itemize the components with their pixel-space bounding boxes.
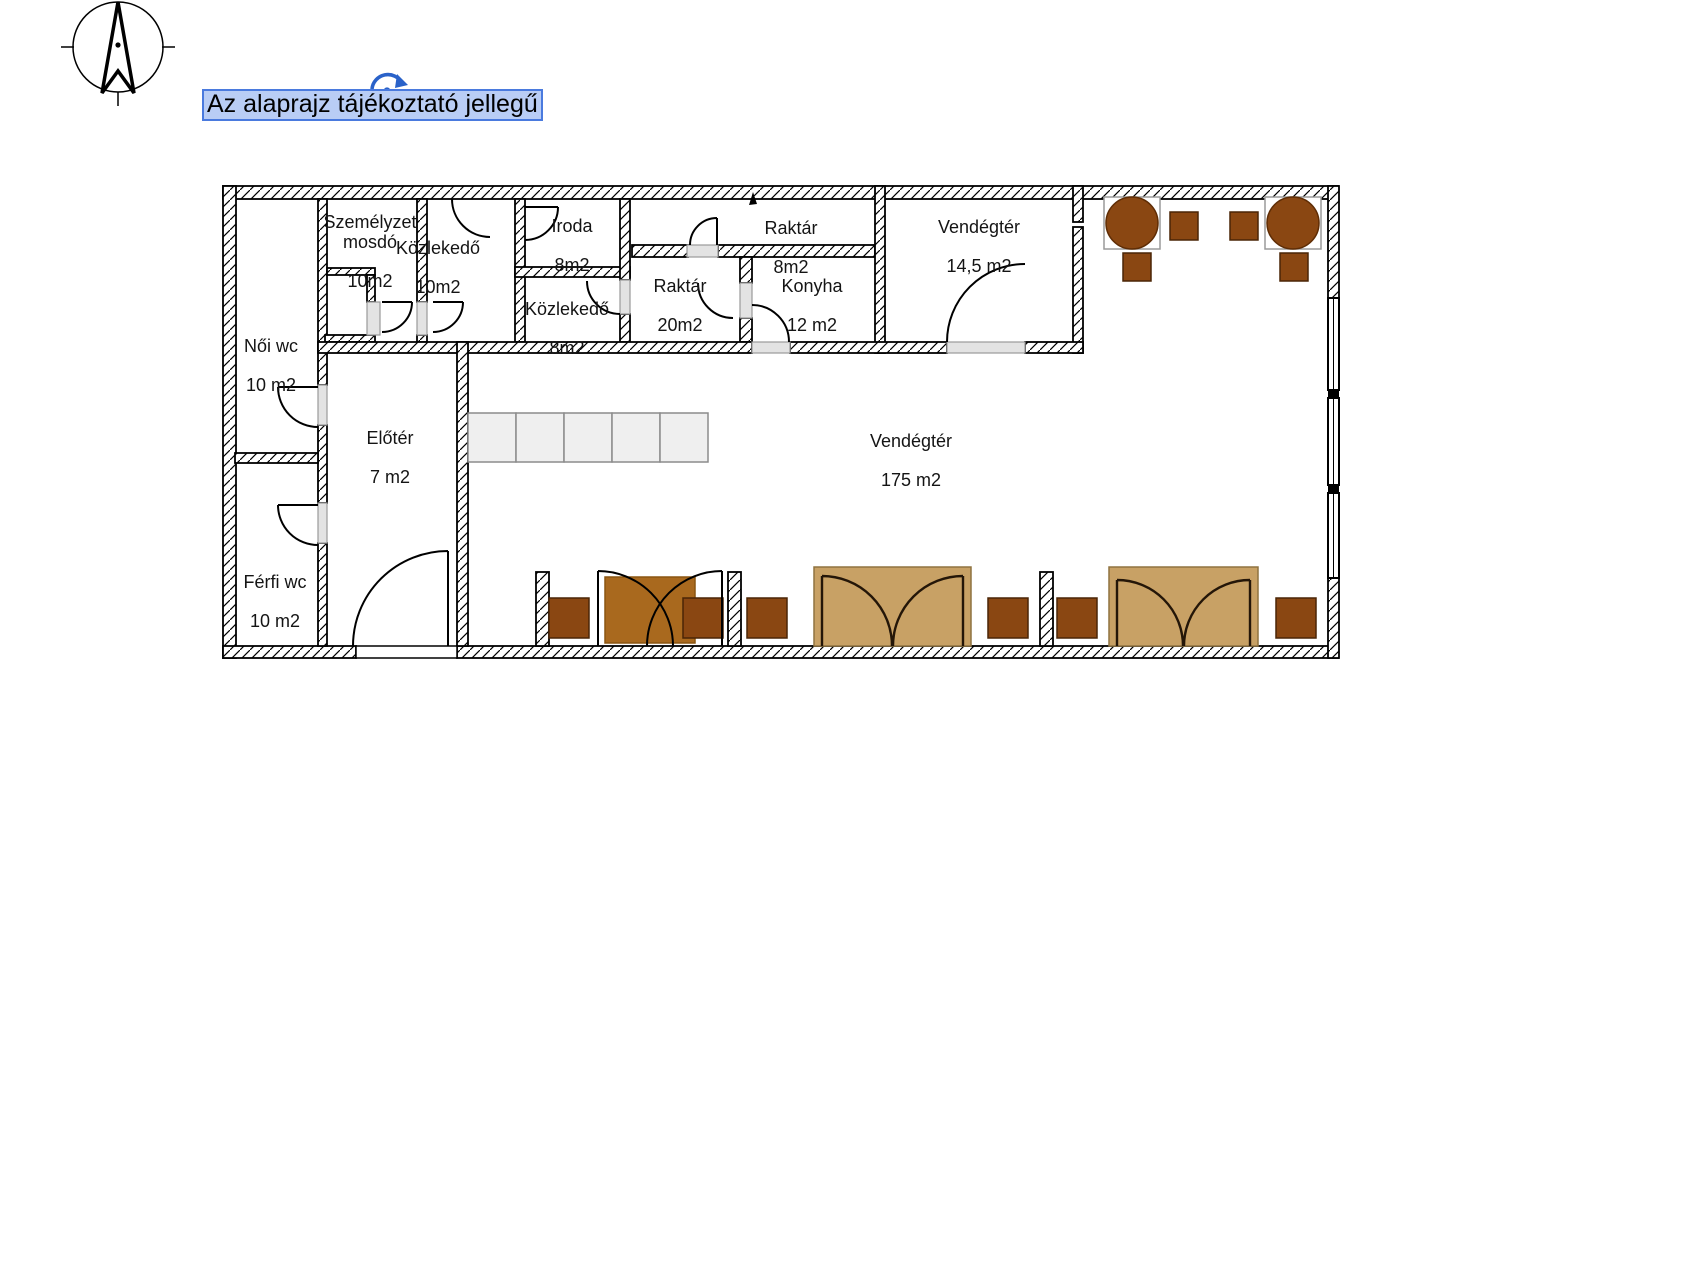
window-mullion xyxy=(1328,485,1339,493)
bar-counter-segment[interactable] xyxy=(660,413,708,462)
bar-counter-segment[interactable] xyxy=(516,413,564,462)
wall-segment xyxy=(417,335,427,342)
wall-segment xyxy=(1025,342,1083,353)
bar-counter[interactable] xyxy=(468,413,708,462)
room-name: Közlekedő xyxy=(525,300,609,319)
floor-plan-page: Az alaprajz tájékoztató jellegű xyxy=(0,0,1690,1284)
room-label-kozlekedo-10: Közlekedő 10m2 xyxy=(396,220,480,317)
round-table-group[interactable] xyxy=(1104,197,1198,281)
room-label-kozlekedo-8: Közlekedő 8m2 xyxy=(525,281,609,378)
door-arc xyxy=(278,505,318,545)
room-label-eloter: Előtér 7 m2 xyxy=(366,410,413,507)
entrance-threshold xyxy=(356,646,457,658)
chair[interactable] xyxy=(988,598,1028,638)
room-label-vendegter-175: Vendégtér 175 m2 xyxy=(870,413,952,510)
wall-pier xyxy=(536,572,549,646)
room-name: Iroda xyxy=(551,217,592,236)
door-arc xyxy=(690,218,717,245)
room-area: 10 m2 xyxy=(244,376,298,395)
room-name: Vendégtér xyxy=(870,432,952,451)
wall-segment xyxy=(1073,186,1083,222)
chair[interactable] xyxy=(1057,598,1097,638)
booth-bench[interactable] xyxy=(814,567,971,646)
wall-segment xyxy=(457,646,1338,658)
bar-counter-segment[interactable] xyxy=(564,413,612,462)
wall-segment xyxy=(1328,186,1339,298)
wall-pier xyxy=(1040,572,1053,646)
door-sill xyxy=(947,342,1025,353)
wall-segment xyxy=(318,543,327,646)
windows xyxy=(1328,298,1339,578)
round-table-group[interactable] xyxy=(1230,197,1321,281)
room-label-raktar-20: Raktár 20m2 xyxy=(653,258,706,355)
wall-segment xyxy=(325,335,375,342)
room-area: 14,5 m2 xyxy=(938,257,1020,276)
wall-segment xyxy=(875,186,885,353)
wall-pier xyxy=(728,572,741,646)
room-label-konyha: Konyha 12 m2 xyxy=(781,258,842,355)
room-area: 10 m2 xyxy=(244,612,307,631)
chair[interactable] xyxy=(549,598,589,638)
chair[interactable] xyxy=(1230,212,1258,240)
room-label-noi-wc: Női wc 10 m2 xyxy=(244,318,298,415)
booth-bench[interactable] xyxy=(1109,567,1258,646)
door-sill xyxy=(318,503,327,543)
wall-segment xyxy=(457,342,468,646)
round-table[interactable] xyxy=(1106,197,1158,249)
room-name: Raktár xyxy=(653,277,706,296)
bar-counter-segment[interactable] xyxy=(468,413,516,462)
table[interactable] xyxy=(605,577,695,643)
window-mullion xyxy=(1328,390,1339,398)
wall-segment xyxy=(620,314,630,342)
wall-segment xyxy=(740,318,752,342)
wall-segment xyxy=(1328,578,1339,658)
chair[interactable] xyxy=(1170,212,1198,240)
room-area: 8m2 xyxy=(551,256,592,275)
bar-counter-segment[interactable] xyxy=(612,413,660,462)
room-name: Közlekedő xyxy=(396,239,480,258)
wall-segment xyxy=(740,257,752,283)
chair[interactable] xyxy=(747,598,787,638)
room-name: Vendégtér xyxy=(938,218,1020,237)
room-area: 10m2 xyxy=(396,278,480,297)
room-area: 12 m2 xyxy=(781,316,842,335)
room-area: 175 m2 xyxy=(870,471,952,490)
room-name: Konyha xyxy=(781,277,842,296)
door-sill xyxy=(620,280,630,314)
door-arc xyxy=(353,551,448,646)
room-label-vendegter-14-5: Vendégtér 14,5 m2 xyxy=(938,199,1020,296)
wall-segment xyxy=(318,425,327,503)
chair[interactable] xyxy=(683,598,723,638)
chair[interactable] xyxy=(1123,253,1151,281)
room-area: 20m2 xyxy=(653,316,706,335)
wall-segment xyxy=(223,186,236,658)
wall-segment xyxy=(235,453,318,463)
room-name: Női wc xyxy=(244,337,298,356)
chair[interactable] xyxy=(1280,253,1308,281)
chair[interactable] xyxy=(1276,598,1316,638)
door-sill xyxy=(740,283,752,318)
round-table[interactable] xyxy=(1267,197,1319,249)
wall-segment xyxy=(620,199,630,280)
room-area: 8m2 xyxy=(525,339,609,358)
wall-segment xyxy=(1073,227,1083,353)
door-sill xyxy=(687,245,718,257)
room-label-ferfi-wc: Férfi wc 10 m2 xyxy=(244,554,307,651)
room-name: Férfi wc xyxy=(244,573,307,592)
door-sill xyxy=(318,385,327,425)
wall-segment xyxy=(632,245,688,257)
room-name: Raktár xyxy=(764,219,817,238)
room-area: 7 m2 xyxy=(366,468,413,487)
room-name: Előtér xyxy=(366,429,413,448)
